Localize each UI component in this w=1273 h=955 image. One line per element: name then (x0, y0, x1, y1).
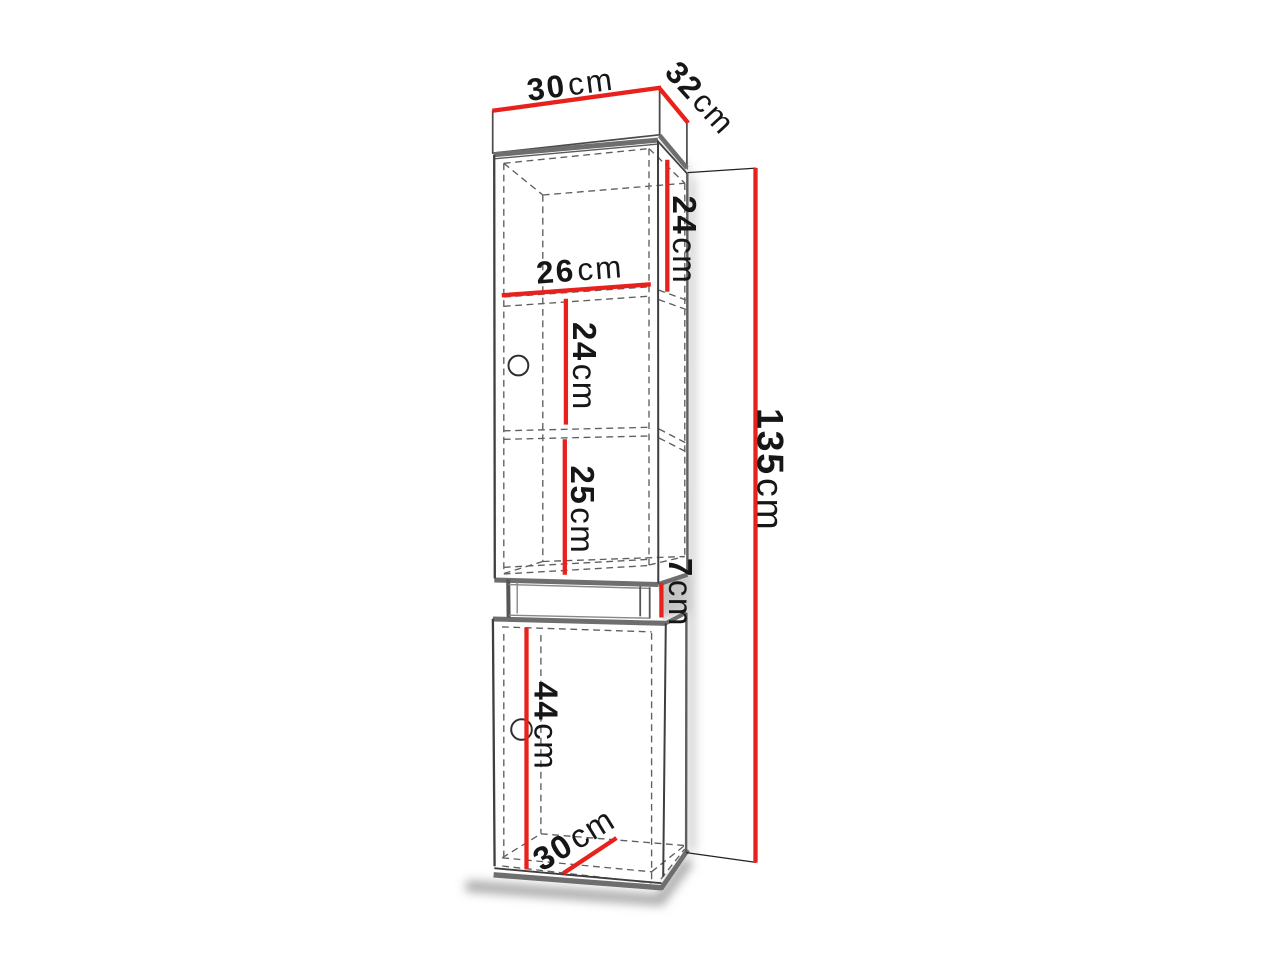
svg-text:44cm: 44cm (528, 682, 565, 771)
svg-text:7cm: 7cm (662, 558, 699, 627)
svg-text:26cm: 26cm (535, 248, 625, 291)
svg-text:24cm: 24cm (566, 322, 603, 411)
svg-text:25cm: 25cm (564, 466, 601, 555)
svg-text:135cm: 135cm (750, 408, 792, 532)
svg-text:24cm: 24cm (666, 196, 703, 285)
